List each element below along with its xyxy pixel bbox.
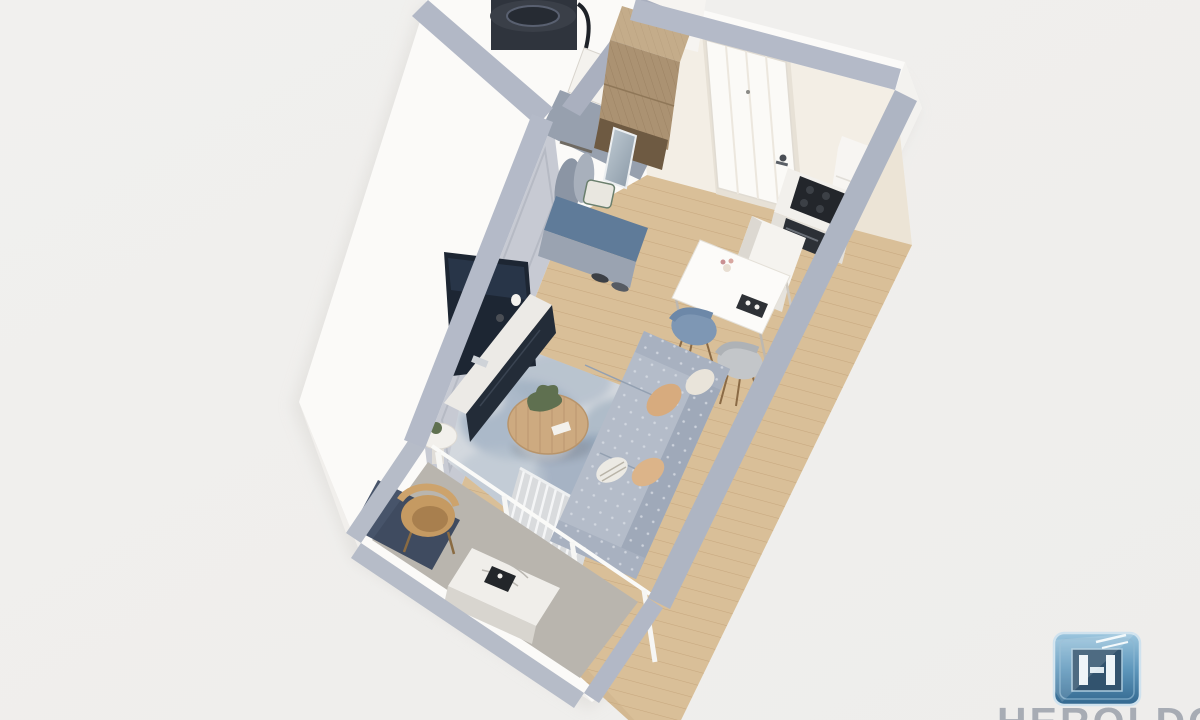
vase <box>511 294 521 306</box>
h-logo-icon <box>1054 633 1140 705</box>
peephole <box>746 90 750 94</box>
floorplan-render: HEROLDO <box>0 0 1200 720</box>
washing-machine <box>490 0 589 50</box>
floorplan-scene: HEROLDO <box>0 0 1200 720</box>
watermark-text: HEROLDO <box>997 699 1200 720</box>
door-handle <box>780 155 787 162</box>
sculpture <box>496 314 504 322</box>
shelf-bag <box>583 179 615 208</box>
